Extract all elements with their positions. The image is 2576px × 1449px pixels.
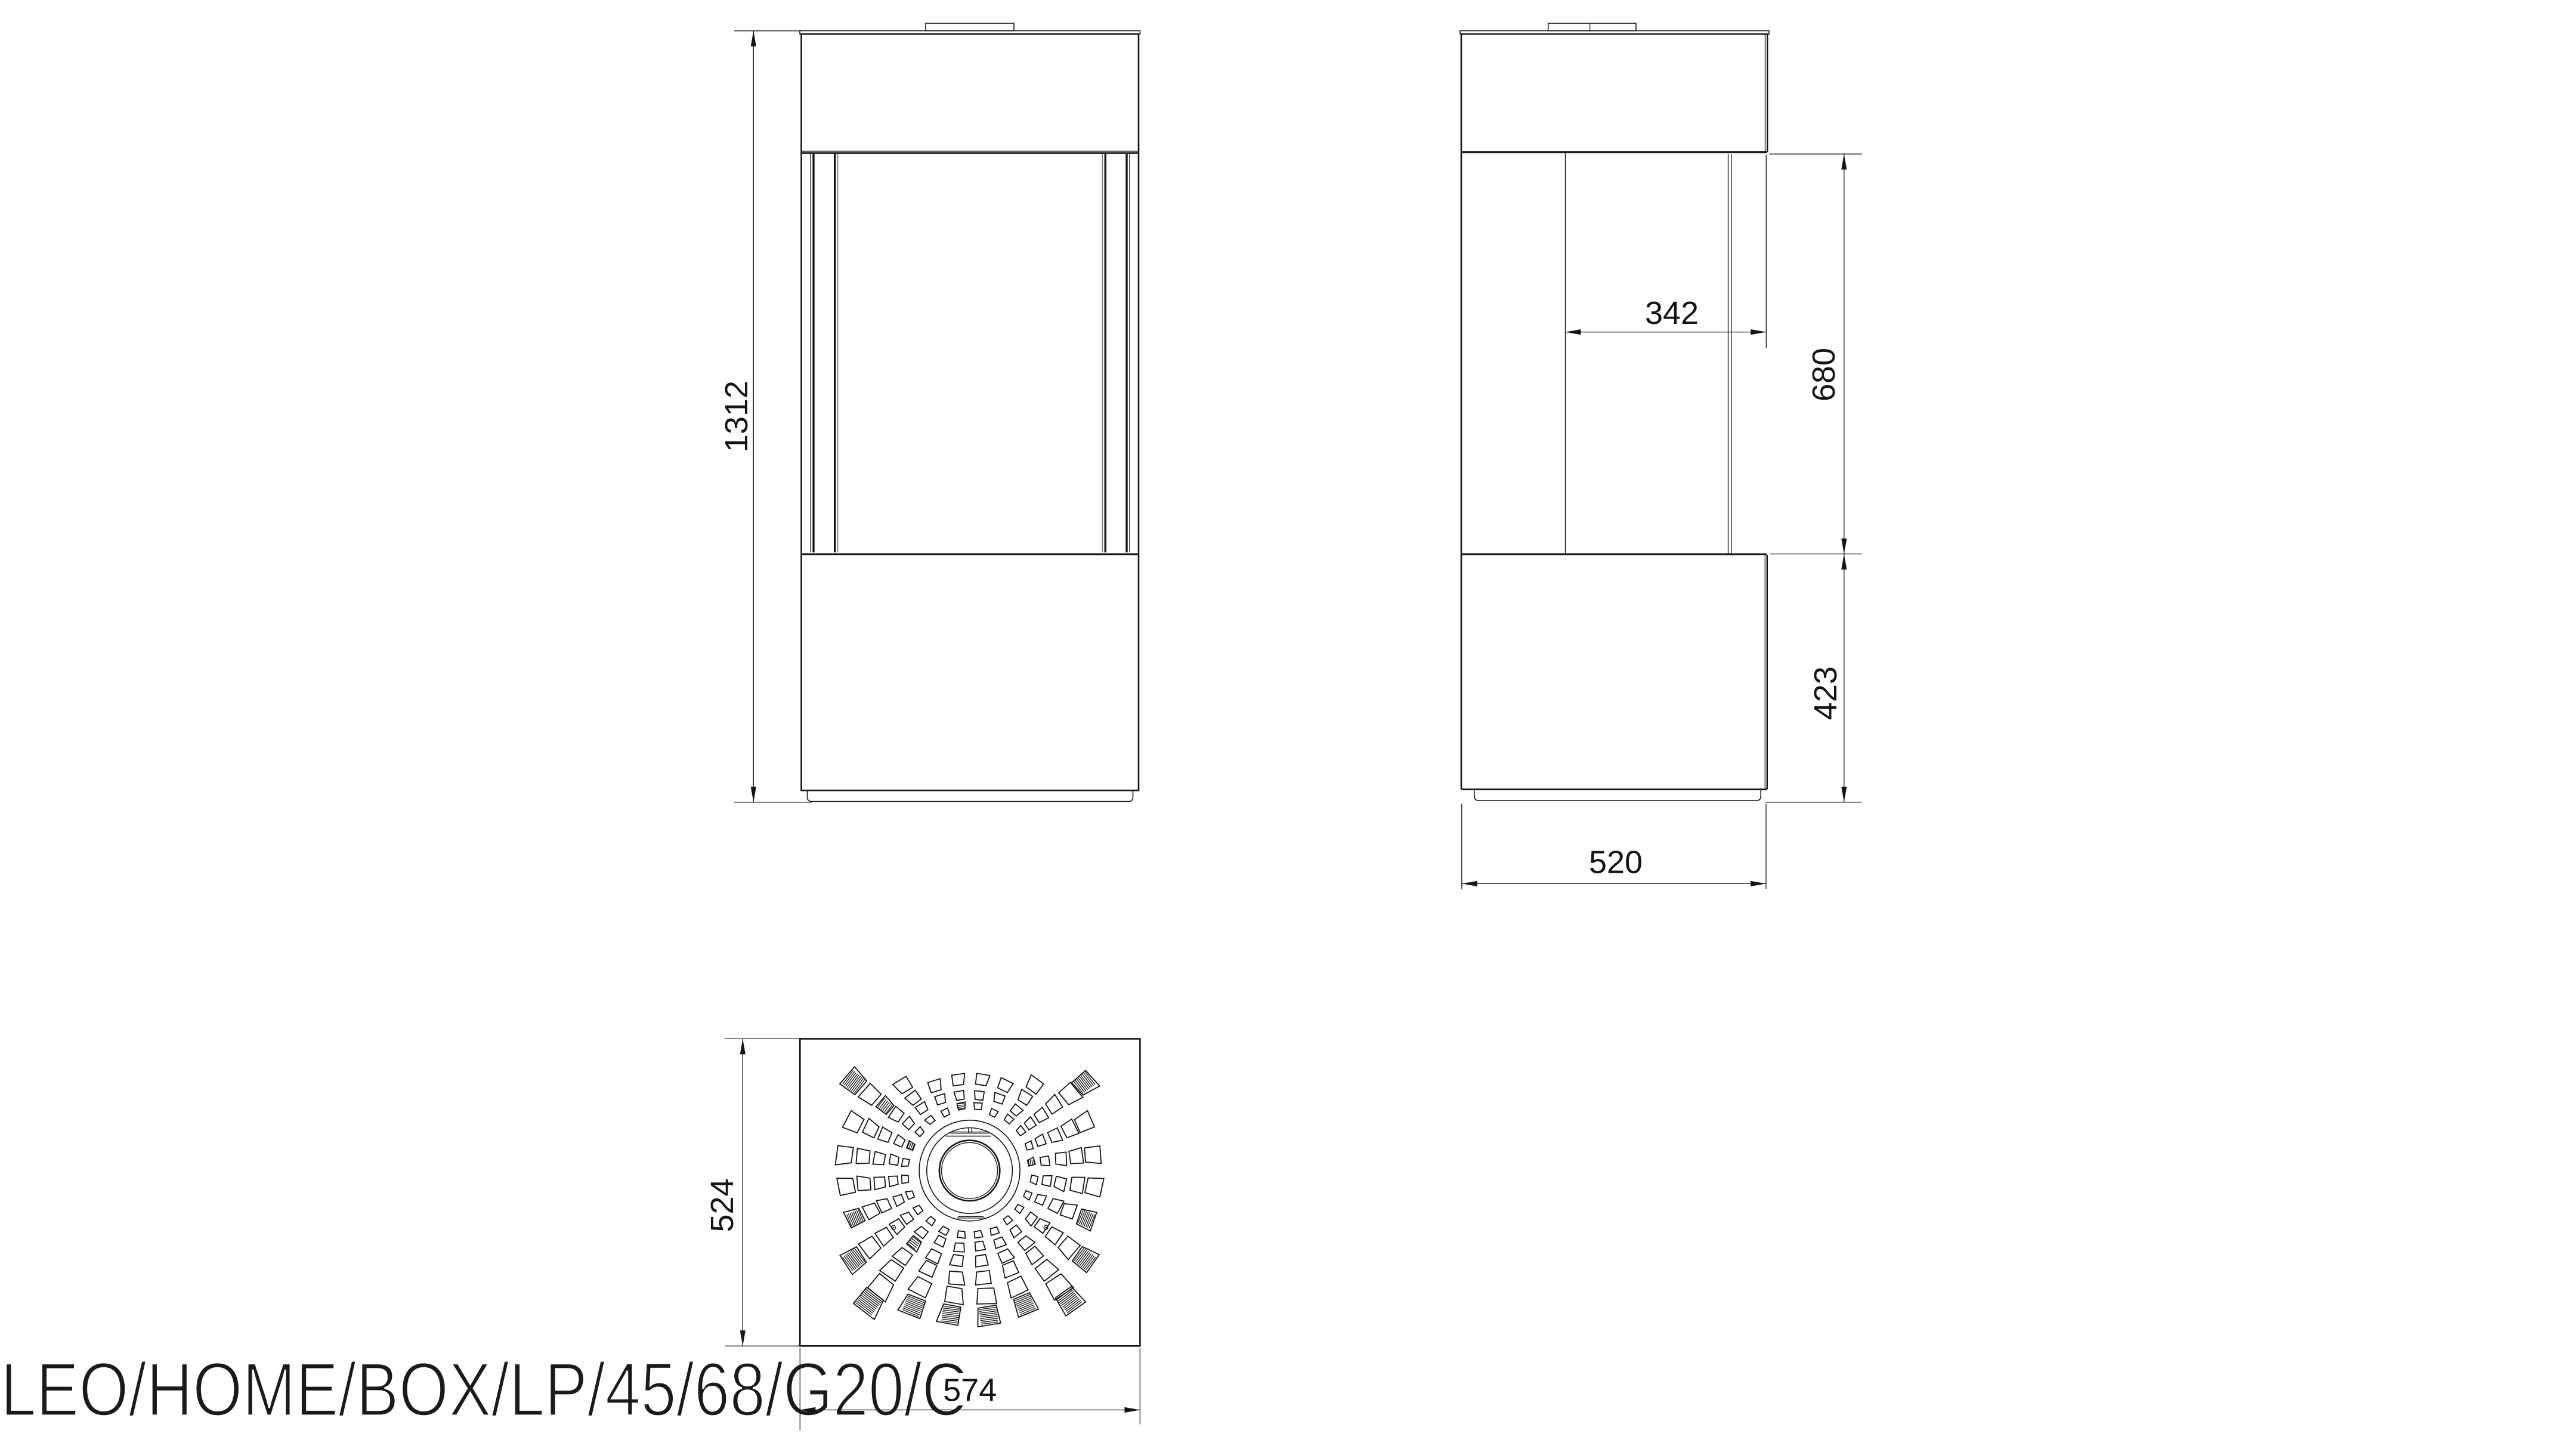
svg-text:524: 524 bbox=[704, 1178, 740, 1232]
svg-text:342: 342 bbox=[1645, 295, 1699, 331]
svg-text:680: 680 bbox=[1806, 348, 1842, 401]
svg-text:574: 574 bbox=[943, 1373, 997, 1408]
svg-text:423: 423 bbox=[1808, 666, 1844, 720]
svg-text:520: 520 bbox=[1589, 845, 1643, 880]
svg-text:1312: 1312 bbox=[719, 381, 754, 452]
svg-text:LEO/HOME/BOX/LP/45/68/G20/C: LEO/HOME/BOX/LP/45/68/G20/C bbox=[1, 1347, 968, 1432]
